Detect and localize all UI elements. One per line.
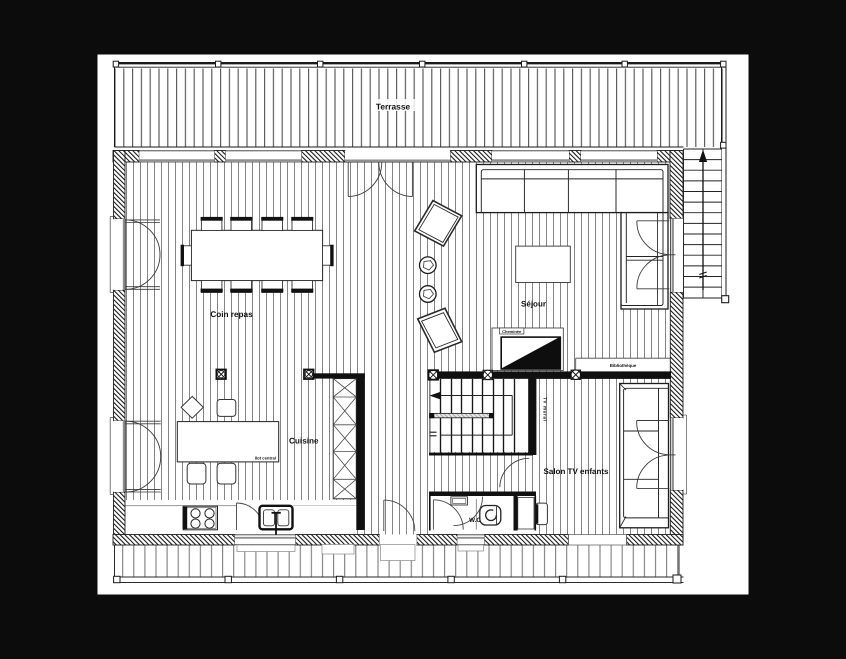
svg-text:Cheminée: Cheminée bbox=[502, 329, 522, 334]
svg-text:TV mural: TV mural bbox=[543, 397, 548, 421]
svg-text:Cuisine: Cuisine bbox=[289, 437, 319, 446]
svg-text:Terrasse: Terrasse bbox=[376, 102, 411, 112]
svg-text:Coin repas: Coin repas bbox=[210, 310, 253, 319]
svg-text:Salon TV enfants: Salon TV enfants bbox=[544, 467, 609, 476]
svg-text:Séjour: Séjour bbox=[521, 300, 546, 309]
svg-text:Ilot central: Ilot central bbox=[255, 455, 276, 460]
svg-text:Bibliothèque: Bibliothèque bbox=[610, 363, 637, 368]
svg-text:W.C: W.C bbox=[469, 517, 481, 524]
